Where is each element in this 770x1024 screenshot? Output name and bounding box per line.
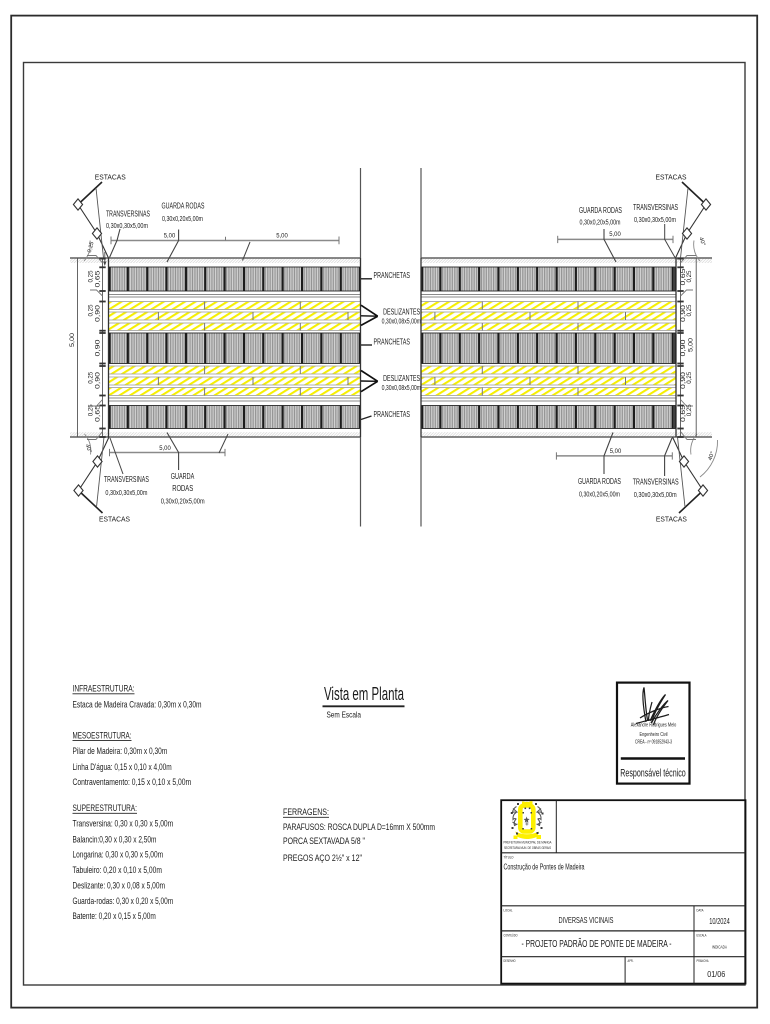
svg-text:0,30x0,20x5,00m: 0,30x0,20x5,00m <box>580 218 621 227</box>
svg-text:5,00: 5,00 <box>159 445 171 452</box>
svg-text:0,30x0,30x5,00m: 0,30x0,30x5,00m <box>106 221 148 230</box>
svg-text:Responsável técnico: Responsável técnico <box>620 768 686 780</box>
svg-text:Guarda-rodas: 0,30 x 0,20 x 5,: Guarda-rodas: 0,30 x 0,20 x 5,00m <box>73 896 174 906</box>
svg-text:0,90: 0,90 <box>95 372 102 389</box>
svg-text:PRANCHETAS: PRANCHETAS <box>374 270 411 280</box>
svg-text:0,30x0,20x5,00m: 0,30x0,20x5,00m <box>161 497 205 506</box>
svg-text:GUARDA: GUARDA <box>171 472 195 481</box>
svg-text:Deslizante: 0,30 x 0,08 x 5,00: Deslizante: 0,30 x 0,08 x 5,00m <box>73 880 166 890</box>
svg-text:CONTEÚDO: CONTEÚDO <box>504 932 518 937</box>
svg-text:DIVERSAS VICINAIS: DIVERSAS VICINAIS <box>559 916 614 925</box>
svg-text:0,25: 0,25 <box>88 304 95 316</box>
svg-text:INDICADA: INDICADA <box>712 944 727 949</box>
svg-text:0,30x0,30x5,00m: 0,30x0,30x5,00m <box>105 488 147 497</box>
svg-text:5,00: 5,00 <box>610 448 622 455</box>
svg-text:PREFEITURA MUNICIPAL DE MANGA: PREFEITURA MUNICIPAL DE MANGA <box>504 840 552 844</box>
svg-text:CREA - nº 091852943-3: CREA - nº 091852943-3 <box>635 740 672 746</box>
svg-text:0,25: 0,25 <box>686 371 693 383</box>
svg-text:0,25: 0,25 <box>88 371 95 383</box>
svg-text:Estaca de Madeira Cravada: 0,3: Estaca de Madeira Cravada: 0,30m x 0,30m <box>73 699 202 709</box>
svg-text:0,90: 0,90 <box>95 305 102 322</box>
svg-text:0,30x0,08x5,00m: 0,30x0,08x5,00m <box>382 317 422 326</box>
svg-text:FERRAGENS:: FERRAGENS: <box>283 807 329 817</box>
svg-text:DESLIZANTES: DESLIZANTES <box>383 307 420 317</box>
svg-text:01/06: 01/06 <box>707 969 725 979</box>
svg-text:MESOESTRUTURA:: MESOESTRUTURA: <box>73 730 132 740</box>
svg-text:SECRETARIA MUN. DE OBRAS GERAI: SECRETARIA MUN. DE OBRAS GERAIS <box>504 846 551 850</box>
svg-text:Batente: 0,20 x 0,15 x 5,00m: Batente: 0,20 x 0,15 x 5,00m <box>73 911 156 921</box>
svg-text:PORCA SEXTAVADA 5/8 ": PORCA SEXTAVADA 5/8 " <box>283 836 365 846</box>
svg-text:DATA: DATA <box>697 908 704 912</box>
svg-text:ESTACAS: ESTACAS <box>99 515 130 524</box>
svg-text:Tabuleiro: 0,20 x 0,10 x 5,00m: Tabuleiro: 0,20 x 0,10 x 5,00m <box>73 865 162 875</box>
svg-text:Longarina: 0,30 x 0,30 x 5,00m: Longarina: 0,30 x 0,30 x 5,00m <box>73 850 164 860</box>
svg-text:0,25: 0,25 <box>686 270 693 282</box>
svg-text:ESTACAS: ESTACAS <box>656 515 687 524</box>
svg-text:Vista em Planta: Vista em Planta <box>324 684 405 704</box>
svg-text:GUARDA RODAS: GUARDA RODAS <box>579 206 622 215</box>
svg-text:0,65: 0,65 <box>95 270 102 287</box>
svg-text:0,65: 0,65 <box>95 405 102 422</box>
svg-text:10/2024: 10/2024 <box>709 916 730 926</box>
svg-text:Transversina: 0,30 x 0,30 x 5,: Transversina: 0,30 x 0,30 x 5,00m <box>73 818 174 828</box>
svg-text:Sem Escala: Sem Escala <box>327 710 362 720</box>
svg-text:0,25: 0,25 <box>686 304 693 316</box>
svg-text:5,00: 5,00 <box>609 231 621 238</box>
svg-text:Construção de Pontes de Madeir: Construção de Pontes de Madeira <box>504 863 585 872</box>
svg-text:ESTACAS: ESTACAS <box>656 173 687 182</box>
svg-text:0,30x0,08x5,00m: 0,30x0,08x5,00m <box>382 383 422 392</box>
svg-text:Engenheiro Civil: Engenheiro Civil <box>640 732 668 738</box>
svg-text:Balancin:0,30 x 0,30 x 2,50m: Balancin:0,30 x 0,30 x 2,50m <box>73 834 157 844</box>
svg-text:ESTACAS: ESTACAS <box>95 173 126 182</box>
svg-text:Alexandre Rodrigues Melo: Alexandre Rodrigues Melo <box>631 723 677 729</box>
svg-text:DESENHO: DESENHO <box>504 959 516 963</box>
svg-text:5,00: 5,00 <box>69 333 76 347</box>
svg-text:Pilar de Madeira: 0,30m x 0,30: Pilar de Madeira: 0,30m x 0,30m <box>73 746 168 756</box>
svg-text:5,00: 5,00 <box>276 232 288 239</box>
svg-text:TRANSVERSINAS: TRANSVERSINAS <box>106 210 150 219</box>
svg-text:PREGOS AÇO 2½" x 12": PREGOS AÇO 2½" x 12" <box>283 853 362 863</box>
svg-text:ESCALA: ESCALA <box>697 933 707 937</box>
svg-text:0,90: 0,90 <box>680 339 687 356</box>
svg-text:0,30x0,20x5,00m: 0,30x0,20x5,00m <box>162 214 203 223</box>
svg-text:SUPERESTRUTURA:: SUPERESTRUTURA: <box>73 803 138 813</box>
svg-text:0,25: 0,25 <box>88 270 95 282</box>
svg-text:GUARDA RODAS: GUARDA RODAS <box>162 202 205 211</box>
svg-text:5,00: 5,00 <box>688 338 695 352</box>
svg-text:- PROJETO PADRÃO DE PONTE DE M: - PROJETO PADRÃO DE PONTE DE MADEIRA - <box>522 937 672 950</box>
svg-text:LOCAL: LOCAL <box>504 908 513 912</box>
svg-text:0,30x0,30x5,00m: 0,30x0,30x5,00m <box>634 215 676 224</box>
svg-text:APR.: APR. <box>628 959 634 963</box>
svg-text:5,00: 5,00 <box>164 232 176 239</box>
svg-text:TRANSVERSINAS: TRANSVERSINAS <box>104 475 149 484</box>
svg-text:0,30x0,20x5,00m: 0,30x0,20x5,00m <box>579 490 620 499</box>
svg-text:PARAFUSOS: ROSCA DUPLA D=16mm: PARAFUSOS: ROSCA DUPLA D=16mm X 500mm <box>283 822 435 832</box>
svg-text:INFRAESTRUTURA:: INFRAESTRUTURA: <box>73 684 135 694</box>
svg-text:PRANCHETAS: PRANCHETAS <box>374 337 411 347</box>
svg-text:PRANCHETAS: PRANCHETAS <box>374 409 411 419</box>
svg-text:TÍTULO: TÍTULO <box>504 856 514 860</box>
svg-text:GUARDA RODAS: GUARDA RODAS <box>578 477 621 486</box>
svg-text:0,30x0,30x5,00m: 0,30x0,30x5,00m <box>634 490 677 499</box>
svg-text:0,90: 0,90 <box>95 339 102 356</box>
svg-text:Linha D'água: 0,15 x 0,10 x 4,: Linha D'água: 0,15 x 0,10 x 4,00m <box>73 762 172 772</box>
svg-text:TRANSVERSINAS: TRANSVERSINAS <box>633 203 678 212</box>
svg-text:DESLIZANTES: DESLIZANTES <box>383 373 420 383</box>
svg-text:Contraventamento: 0,15 x 0,10: Contraventamento: 0,15 x 0,10 x 5,00m <box>73 777 192 787</box>
svg-text:PRANCHA: PRANCHA <box>697 959 709 963</box>
svg-text:TRANSVERSINAS: TRANSVERSINAS <box>633 478 679 487</box>
svg-text:RODAS: RODAS <box>172 484 193 493</box>
